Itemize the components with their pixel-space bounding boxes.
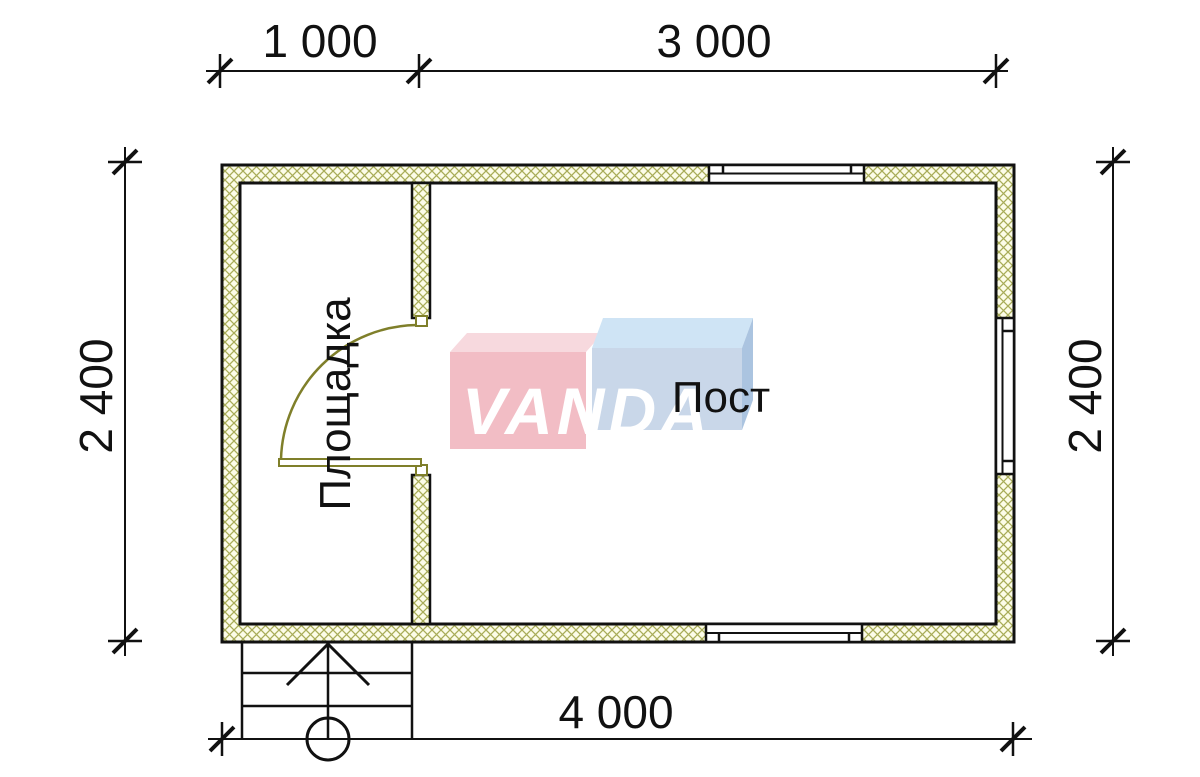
floor-plan-drawing: VANDA	[0, 0, 1200, 772]
partition-wall-upper	[412, 183, 430, 318]
dim-label-1000: 1 000	[262, 15, 377, 67]
dim-label-4000: 4 000	[558, 686, 673, 738]
dimension-left: 2 400	[70, 147, 142, 656]
logo-blue-top-face	[592, 318, 753, 348]
stair-arrow-left	[287, 644, 328, 685]
dim-label-right-2400: 2 400	[1059, 338, 1111, 453]
floor-plan-page: VANDA	[0, 0, 1200, 772]
window-top	[709, 165, 864, 183]
dim-label-3000: 3 000	[656, 15, 771, 67]
stair-arrow-right	[328, 644, 369, 685]
window-right	[996, 318, 1014, 474]
window-bottom	[706, 624, 862, 642]
entrance-stairs	[242, 642, 412, 760]
partition-wall-lower	[412, 475, 430, 624]
door-jamb-top	[416, 316, 427, 326]
logo-red-top-face	[450, 333, 603, 352]
dimension-bottom: 4 000	[208, 686, 1032, 756]
room-label-post: Пост	[672, 373, 770, 422]
room-label-ploschadka: Площадка	[311, 297, 360, 511]
dimension-right: 2 400	[1059, 147, 1130, 656]
dim-label-left-2400: 2 400	[70, 338, 122, 453]
dimension-top: 1 000 3 000	[206, 15, 1008, 88]
